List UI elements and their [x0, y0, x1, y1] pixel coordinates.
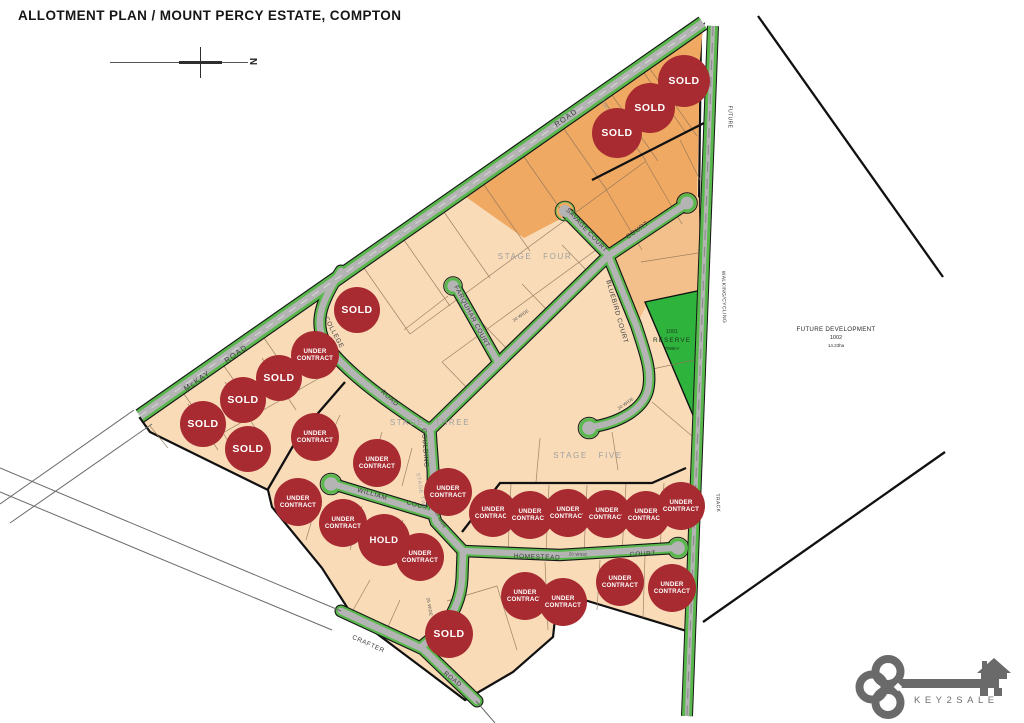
badge-text: UNDER: [669, 499, 692, 506]
future-development-title: FUTURE DEVELOPMENT: [797, 325, 876, 334]
reserve-label: 1001 RESERVE 7999m²: [653, 328, 691, 352]
badge-text: CONTRACT: [550, 513, 586, 520]
status-badge-under-contract: UNDERCONTRACT: [539, 578, 587, 626]
badge-text: CONTRACT: [512, 515, 548, 522]
future-development-area: 14.23ha: [797, 342, 876, 349]
badge-text: SOLD: [227, 394, 258, 406]
status-badge-sold: SOLD: [334, 287, 380, 333]
badge-text: CONTRACT: [359, 463, 395, 470]
compass-needle: [200, 47, 201, 78]
status-badge-under-contract: UNDERCONTRACT: [353, 439, 401, 487]
page-title: ALLOTMENT PLAN / MOUNT PERCY ESTATE, COM…: [18, 8, 401, 23]
badge-text: UNDER: [481, 506, 504, 513]
status-badge-sold: SOLD: [220, 377, 266, 423]
badge-text: SOLD: [187, 418, 218, 430]
badge-text: UNDER: [551, 595, 574, 602]
key2sale-logo: [848, 648, 1024, 720]
badge-text: UNDER: [436, 485, 459, 492]
reserve-lot-number: 1001: [653, 328, 691, 336]
badge-text: CONTRACT: [325, 523, 361, 530]
allotment-plan-page: ALLOTMENT PLAN / MOUNT PERCY ESTATE, COM…: [0, 0, 1024, 723]
compass-north-label: N: [247, 58, 258, 65]
badge-text: UNDER: [286, 495, 309, 502]
badge-text: UNDER: [331, 516, 354, 523]
road-label-court: COURT: [630, 551, 656, 559]
future-development-boundary: [703, 16, 945, 622]
badge-text: CONTRACT: [297, 437, 333, 444]
badge-text: UNDER: [518, 508, 541, 515]
badge-text: SOLD: [263, 372, 294, 384]
road-label-goulding: GOULDING: [419, 428, 428, 468]
badge-text: CONTRACT: [402, 557, 438, 564]
badge-text: SOLD: [433, 628, 464, 640]
badge-text: UNDER: [556, 506, 579, 513]
road-label-track: TRACK: [714, 493, 720, 512]
status-badge-under-contract: UNDERCONTRACT: [657, 482, 705, 530]
badge-text: UNDER: [513, 589, 536, 596]
badge-text: SOLD: [232, 443, 263, 455]
badge-text: SOLD: [668, 75, 699, 87]
badge-text: CONTRACT: [280, 502, 316, 509]
status-badge-sold: SOLD: [425, 610, 473, 658]
badge-text: CONTRACT: [507, 596, 543, 603]
brand-name: KEY2SALE: [914, 695, 999, 706]
badge-text: UNDER: [660, 581, 683, 588]
stage-label-stage-three: STAGE THREE: [390, 419, 470, 427]
status-badge-under-contract: UNDERCONTRACT: [291, 331, 339, 379]
badge-text: CONTRACT: [654, 588, 690, 595]
badge-text: UNDER: [365, 456, 388, 463]
reserve-area: 7999m²: [653, 346, 691, 352]
badge-text: CONTRACT: [602, 582, 638, 589]
road-label-future: FUTURE: [727, 106, 732, 129]
badge-text: CONTRACT: [297, 355, 333, 362]
status-badge-under-contract: UNDERCONTRACT: [274, 478, 322, 526]
status-badge-sold: SOLD: [225, 426, 271, 472]
badge-text: CONTRACT: [545, 602, 581, 609]
stage-label-stage-five: STAGE FIVE: [553, 452, 623, 460]
status-badge-under-contract: UNDERCONTRACT: [291, 413, 339, 461]
badge-text: CONTRACT: [430, 492, 466, 499]
status-badge-under-contract: UNDERCONTRACT: [596, 558, 644, 606]
future-development-label: FUTURE DEVELOPMENT 1002 14.23ha: [797, 325, 876, 349]
status-badge-hold: HOLD: [358, 514, 410, 566]
road-label-walking-cycling: WALKING/CYCLING: [720, 271, 726, 324]
badge-text: UNDER: [303, 430, 326, 437]
badge-text: CONTRACT: [589, 514, 625, 521]
badge-text: UNDER: [303, 348, 326, 355]
badge-text: SOLD: [634, 102, 665, 114]
badge-text: HOLD: [370, 535, 399, 546]
future-development-lot: 1002: [797, 334, 876, 342]
badge-text: UNDER: [595, 507, 618, 514]
road-width-label-20-wide: 20 WIDE: [569, 553, 588, 558]
badge-text: UNDER: [408, 550, 431, 557]
badge-text: CONTRACT: [663, 506, 699, 513]
badge-text: SOLD: [601, 127, 632, 139]
stage-label-stage-four: STAGE FOUR: [498, 253, 572, 261]
status-badge-sold: SOLD: [592, 108, 642, 158]
status-badge-sold: SOLD: [180, 401, 226, 447]
badge-text: UNDER: [634, 508, 657, 515]
status-badge-under-contract: UNDERCONTRACT: [424, 468, 472, 516]
status-badge-under-contract: UNDERCONTRACT: [648, 564, 696, 612]
badge-text: UNDER: [608, 575, 631, 582]
reserve-name: RESERVE: [653, 336, 691, 346]
badge-text: SOLD: [341, 304, 372, 316]
